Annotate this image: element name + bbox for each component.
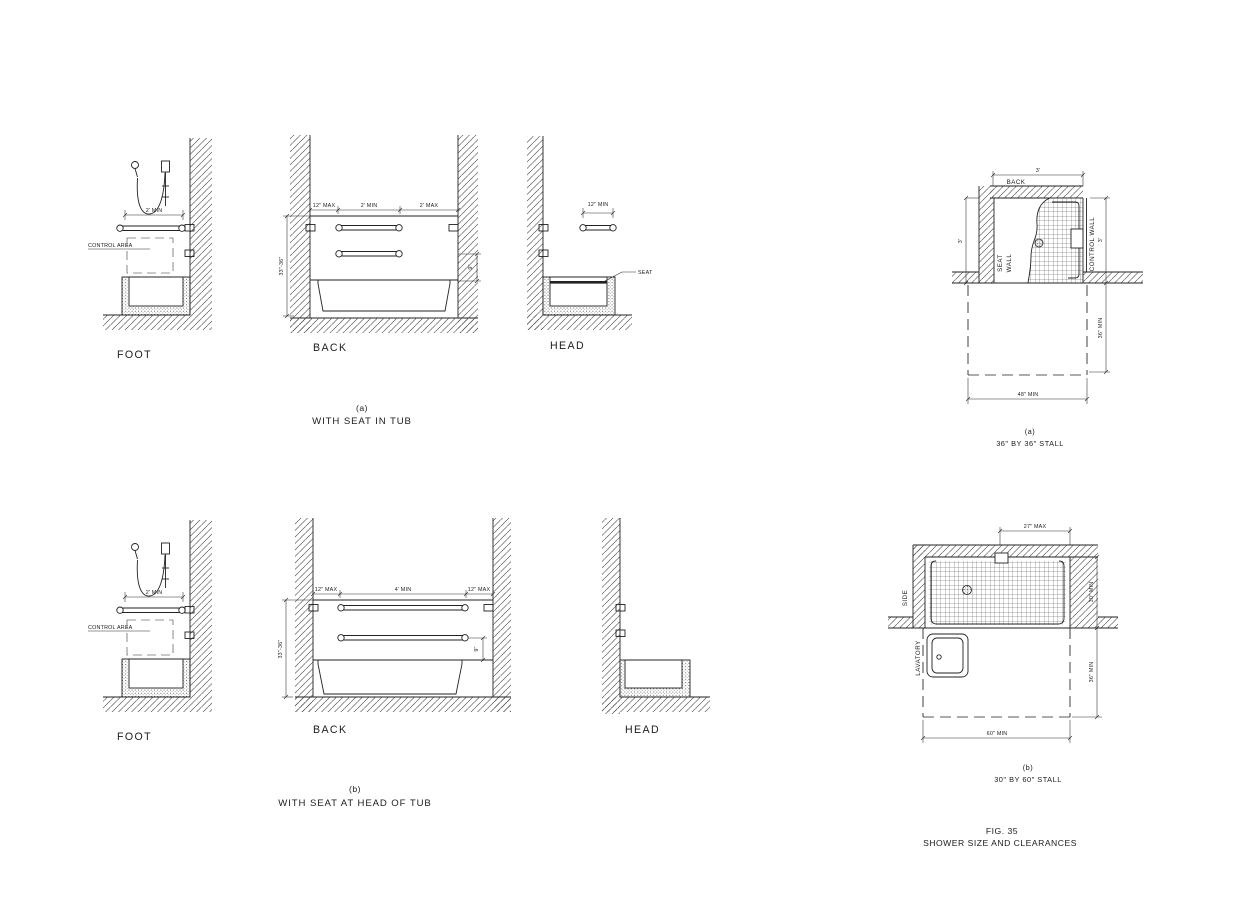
stall-b-lavatory-label: LAVATORY <box>915 640 922 675</box>
wall-hatch <box>295 518 313 712</box>
wall-hatch <box>527 136 543 330</box>
side-wall-hatch <box>913 545 925 628</box>
floor-hatch <box>295 697 511 712</box>
elevation-head-b: HEAD <box>602 518 710 736</box>
foot-a-view-label: FOOT <box>117 349 152 361</box>
caption-b-tag: (b) <box>349 784 361 794</box>
foot-b-control-area-label: CONTROL AREA <box>88 625 133 631</box>
floor-hatch <box>527 315 632 330</box>
head-a-view-label: HEAD <box>550 340 585 352</box>
stall-plan-30x60: 27" MAX SIDE LAVATORY <box>888 524 1118 784</box>
elevation-back-b: 12" MAX 4' MIN 12" MAX <box>278 518 511 736</box>
wall-hatch <box>290 135 310 333</box>
caption-b-text: WITH SEAT AT HEAD OF TUB <box>278 798 431 809</box>
floor-hatch <box>290 318 478 333</box>
elevation-foot-a: 2' MIN CONTROL AREA FOOT <box>88 138 212 361</box>
back-b-height-label: 33"-36" <box>278 639 284 658</box>
stall-a-clear-depth-label: 36" MIN <box>1098 318 1104 339</box>
stall-b-dim-top-label: 27" MAX <box>1024 524 1047 530</box>
stall-b-side-label: SIDE <box>902 590 909 606</box>
control-notch <box>995 553 1008 563</box>
wall-hatch <box>1098 617 1118 628</box>
wall-hatch <box>1083 272 1143 283</box>
clearance-dashed-outline <box>923 628 1070 717</box>
drain-icon <box>963 586 972 595</box>
foot-b-view-label: FOOT <box>117 731 152 743</box>
shower-floor-grid <box>929 561 1066 625</box>
elevation-foot-b: 2' MIN CONTROL AREA FOOT <box>88 520 212 743</box>
stall-b-caption: 30" BY 60" STALL <box>994 775 1062 784</box>
stall-a-clear-width-label: 48" MIN <box>1018 392 1039 398</box>
back-a-view-label: BACK <box>313 342 347 354</box>
head-b-view-label: HEAD <box>625 724 660 736</box>
head-a-bar-dimension <box>581 208 615 218</box>
stall-a-dim-right-label: 3' <box>1098 238 1104 242</box>
wall-bar-stub <box>484 605 493 612</box>
drawing-canvas: 2' MIN CONTROL AREA FOOT 12" MAX 2' MIN … <box>0 0 1259 900</box>
clearance-dashed-outline <box>968 285 1087 375</box>
stall-b-caption-tag: (b) <box>1023 763 1034 772</box>
wall-bar-stub <box>449 225 458 232</box>
drain-icon <box>1035 239 1043 247</box>
back-a-dim-right: 2' MAX <box>420 203 439 209</box>
head-a-seat-label: SEAT <box>638 270 653 276</box>
wall-hatch <box>952 272 979 283</box>
figure-title-block: FIG. 35 SHOWER SIZE AND CLEARANCES <box>923 826 1077 848</box>
back-wall-hatch <box>990 186 1083 198</box>
back-a-height-label: 33"-36" <box>279 256 285 275</box>
foot-a-bar-dim-label: 2' MIN <box>146 208 163 214</box>
stall-a-dim-left-label: 3' <box>958 239 964 243</box>
stall-a-bottom-dimension <box>966 378 1089 404</box>
elevation-head-a: 12" MIN SEAT HEAD <box>527 136 653 352</box>
stall-plan-36x36: 3' BACK SEAT WALL CONTROL WALL <box>952 168 1143 448</box>
stall-a-seat-wall-label-2: WALL <box>1006 254 1013 273</box>
foot-a-control-area-label: CONTROL AREA <box>88 243 133 249</box>
stall-a-back-label: BACK <box>1007 179 1026 186</box>
seat-wall-hatch <box>979 186 994 283</box>
tub-section-with-seat <box>543 277 615 315</box>
technical-drawing: 2' MIN CONTROL AREA FOOT 12" MAX 2' MIN … <box>0 0 1259 900</box>
back-b-gap-label: 9" <box>474 646 480 651</box>
back-b-view-label: BACK <box>313 724 347 736</box>
grab-bar-upper <box>336 225 402 231</box>
stall-a-caption-tag: (a) <box>1025 427 1036 436</box>
wall-hatch <box>602 518 620 714</box>
stall-b-width-label: 60" MIN <box>987 731 1008 737</box>
grab-bar-lower <box>338 635 468 641</box>
back-a-dim-mid: 2' MIN <box>361 203 378 209</box>
stall-a-seat-wall-label-1: SEAT <box>997 254 1004 272</box>
figure-title: FIG. 35 <box>986 826 1018 836</box>
stall-a-control-wall-label: CONTROL WALL <box>1089 217 1096 271</box>
tub-seat <box>550 281 607 284</box>
wall-hatch <box>888 617 913 628</box>
sink-icon <box>927 634 968 677</box>
elevation-back-a: 12" MAX 2' MIN 2' MAX <box>279 135 481 354</box>
stall-a-caption: 36" BY 36" STALL <box>996 439 1064 448</box>
back-b-dim-mid: 4' MIN <box>395 587 412 593</box>
wall-hatch <box>493 518 511 712</box>
grab-bar-upper <box>338 605 468 611</box>
grab-bar <box>580 225 616 231</box>
back-b-dim-right: 12" MAX <box>468 587 491 593</box>
stall-b-clear-depth-label: 36" MIN <box>1089 662 1095 683</box>
caption-a-tag: (a) <box>356 403 368 413</box>
head-a-bar-dim-label: 12" MIN <box>588 202 609 208</box>
control-unit <box>1071 229 1083 248</box>
tub-elevations-seat-at-head: 2' MIN CONTROL AREA FOOT 12" MAX 4' MIN … <box>88 518 710 809</box>
grab-bar-lower <box>336 251 402 257</box>
caption-a-text: WITH SEAT IN TUB <box>312 416 412 427</box>
tub-section <box>313 660 493 694</box>
stall-b-depth-label: 30" MIN <box>1089 582 1095 603</box>
stall-a-dim-top-label: 3' <box>1036 168 1040 174</box>
tub-section <box>620 660 690 697</box>
back-a-dim-left: 12" MAX <box>313 203 336 209</box>
tub-elevations-seat-in-tub: 2' MIN CONTROL AREA FOOT 12" MAX 2' MIN … <box>88 135 653 427</box>
wall-hatch <box>458 135 478 333</box>
foot-b-bar-dim-label: 2' MIN <box>146 590 163 596</box>
figure-subtitle: SHOWER SIZE AND CLEARANCES <box>923 838 1077 848</box>
back-a-gap-label: 9" <box>468 264 474 269</box>
back-b-dim-left: 12" MAX <box>315 587 338 593</box>
tub-section <box>310 280 458 311</box>
floor-hatch <box>602 697 710 712</box>
